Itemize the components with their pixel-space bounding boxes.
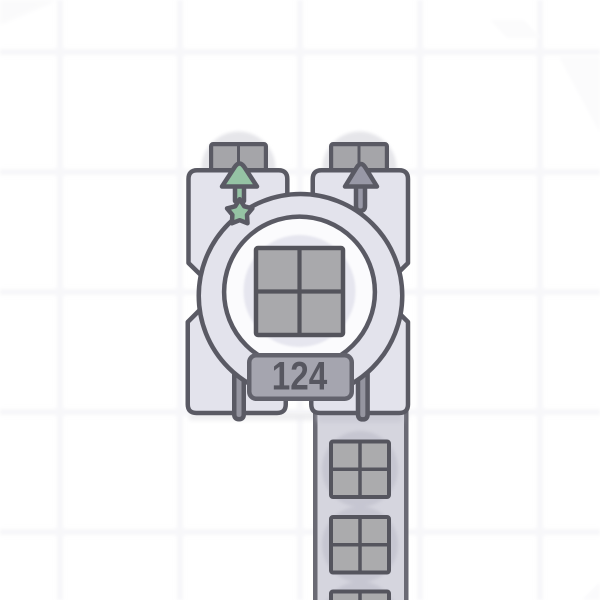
svg-text:124: 124 xyxy=(272,355,328,399)
